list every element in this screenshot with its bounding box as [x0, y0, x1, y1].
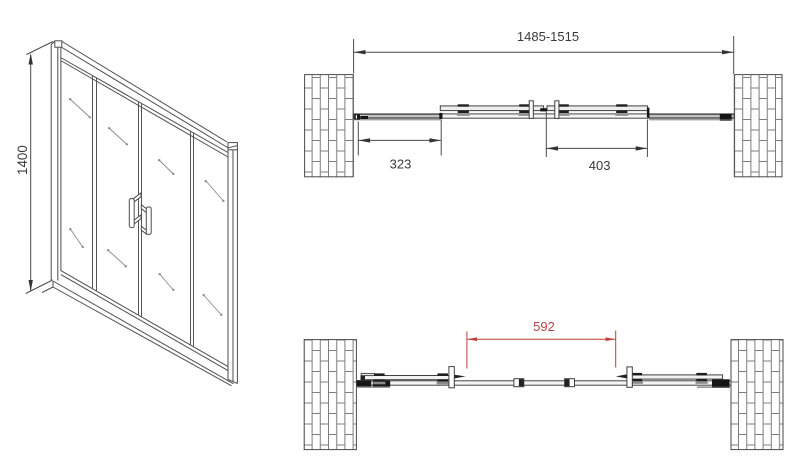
svg-text:1485-1515: 1485-1515: [517, 29, 579, 44]
svg-text:403: 403: [589, 158, 611, 173]
svg-text:323: 323: [390, 157, 412, 172]
svg-text:592: 592: [533, 319, 555, 334]
svg-text:1400: 1400: [15, 145, 30, 175]
